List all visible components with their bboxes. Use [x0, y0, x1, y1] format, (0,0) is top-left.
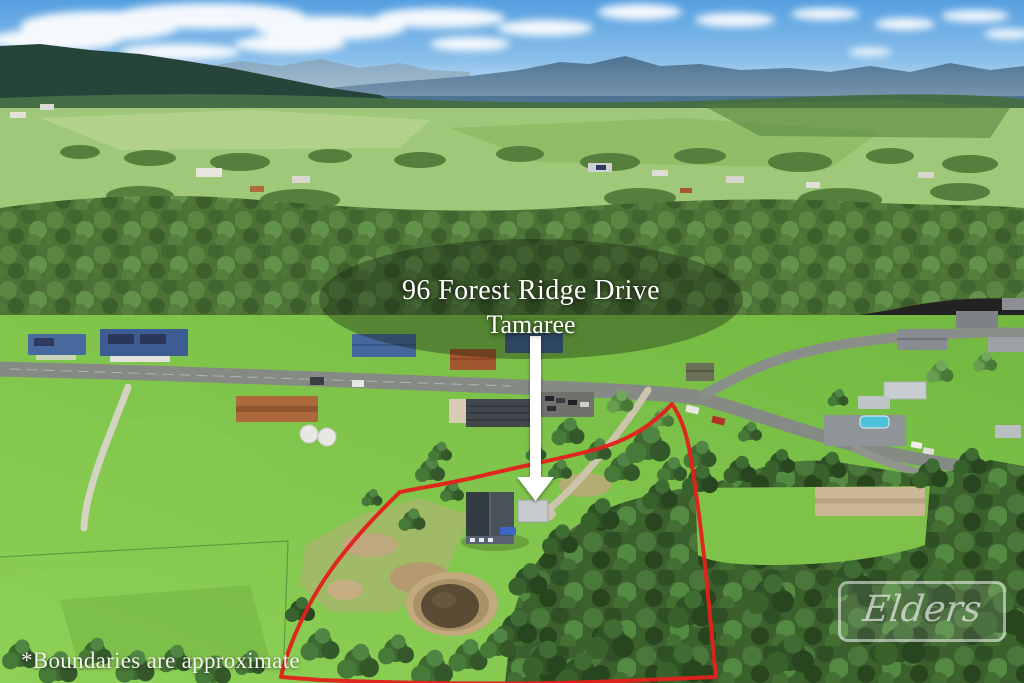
- listing-photo: 96 Forest Ridge Drive Tamaree *Boundarie…: [0, 0, 1024, 683]
- boundary-disclaimer: *Boundaries are approximate: [21, 648, 300, 674]
- brand-watermark: Elders: [838, 581, 1006, 642]
- brand-logo-text: Elders: [861, 592, 984, 632]
- address-line2: Tamaree: [402, 310, 660, 340]
- dam-pond: [406, 572, 498, 636]
- carport: [518, 500, 548, 522]
- address-line1: 96 Forest Ridge Drive: [402, 276, 660, 307]
- address-overlay: 96 Forest Ridge Drive Tamaree: [402, 276, 660, 340]
- blue-ute: [500, 527, 516, 535]
